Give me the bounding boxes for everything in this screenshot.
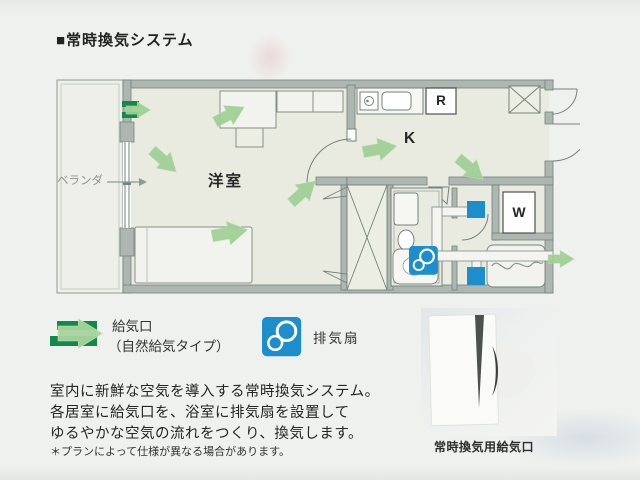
kitchen-counter [357,88,423,114]
supply-legend-label-sub: （自然給気タイプ） [108,337,230,356]
exhaust-fan-icon [409,246,438,275]
toilet [394,193,418,250]
balcony-label: ベランダ [57,172,111,188]
kitchen-label: K [404,130,415,148]
western-room-label: 洋室 [208,169,243,191]
description-line: 室内に新鮮な空気を導入する常時換気システム。 [50,380,380,401]
description-line: 各居室に給気口を、浴室に排気扇を設置して [50,401,350,422]
entrance-doors [552,89,580,161]
page-title: ■常時換気システム [56,29,194,50]
exhaust-legend-icon [262,317,302,357]
page-bottom-edge [0,466,640,480]
floor-plan [50,70,580,310]
vent-product-photo [421,308,557,436]
photo-caption: 常時換気用給気口 [412,438,556,455]
balcony-window [123,142,131,228]
vent-front-panel [429,314,499,426]
exhaust-legend-label: 排気扇 [313,329,360,348]
description-line: ゆるやかな空気の流れをつくり、換気します。 [50,422,363,443]
washing-machine-label: W [503,204,535,220]
supply-legend-label: 給気口 [112,317,153,336]
pipe-shaft [509,86,540,113]
page-top-edge [0,0,640,14]
description-note: ＊プランによって仕様が異なる場合があります。 [50,443,290,459]
refrigerator-label: R [426,93,456,108]
